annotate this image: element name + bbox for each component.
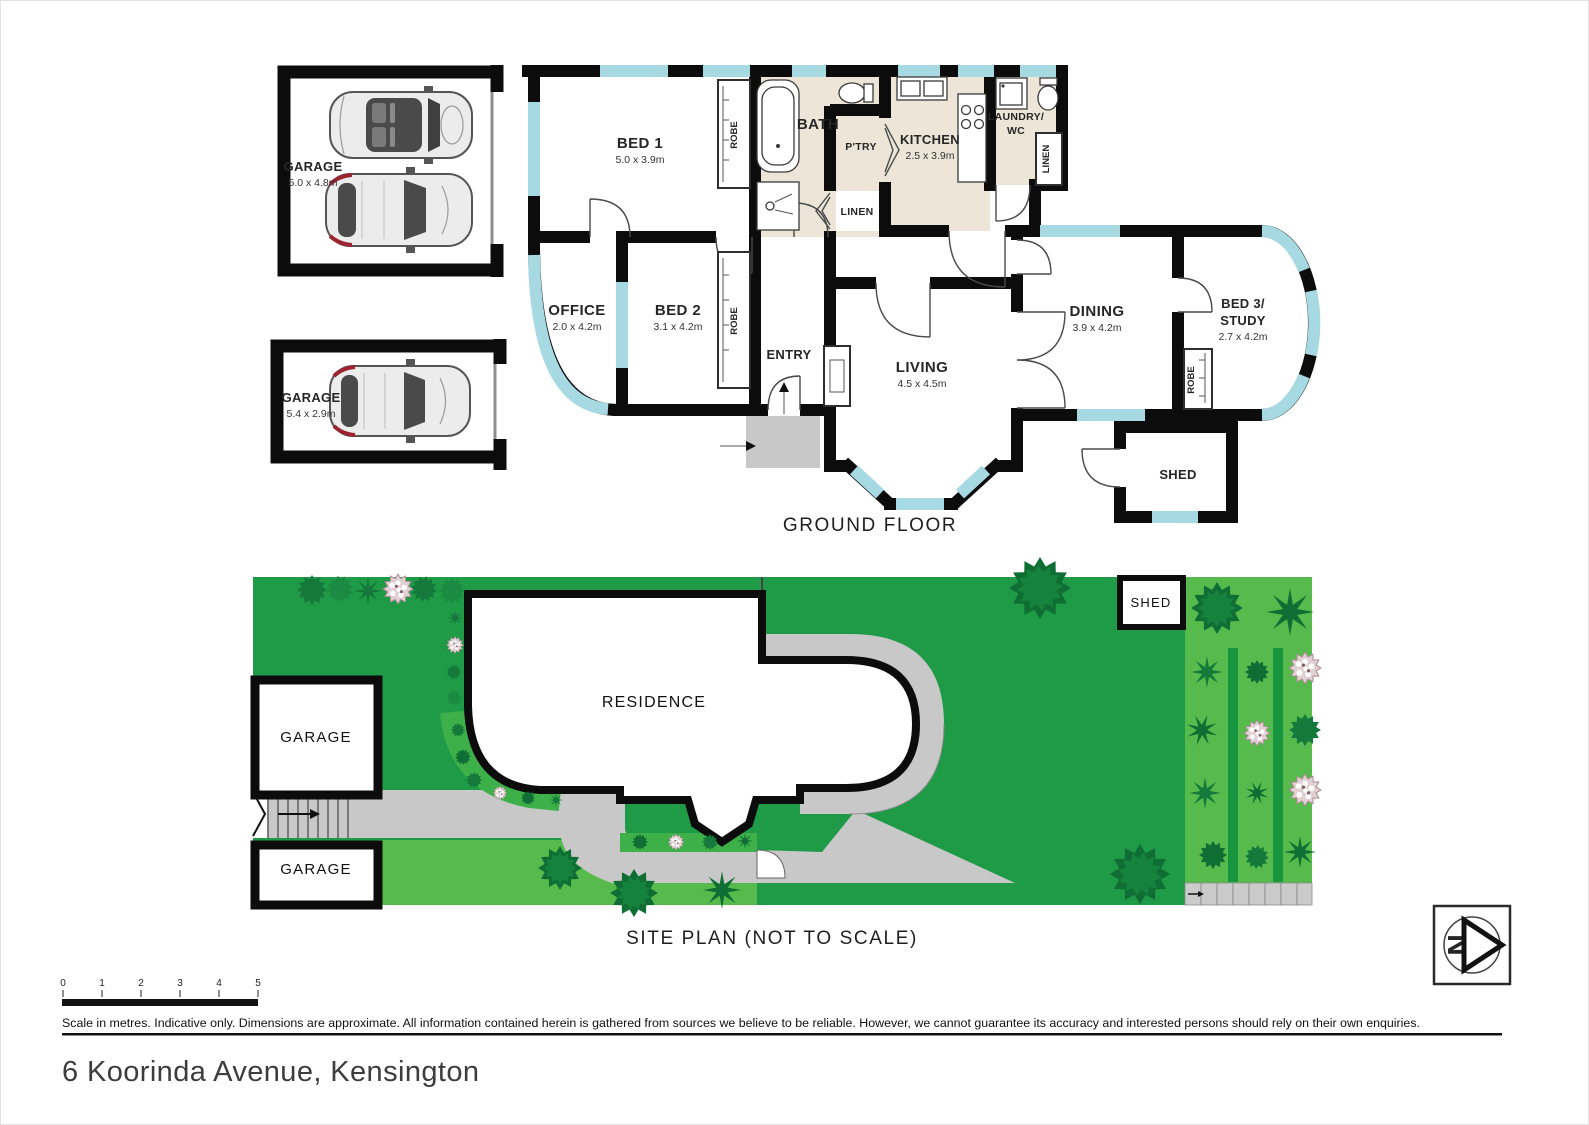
floorplan-canvas: GARAGE 5.0 x 4.8m GARAGE 5.4 x 2.9m BED … [0, 0, 1589, 1125]
living-label: LIVING [896, 359, 948, 376]
pantry-label: P'TRY [845, 141, 877, 153]
wc-toilet-icon [1038, 78, 1058, 110]
scale-tick-5: 5 [255, 978, 261, 989]
shed-plan-label: SHED [1159, 467, 1196, 482]
bed3-label-line2: STUDY [1220, 313, 1266, 328]
site-garage-lower-label: GARAGE [280, 861, 351, 878]
entry-porch [746, 416, 820, 468]
bathtub-icon [757, 80, 799, 172]
car-convertible-icon [330, 86, 472, 164]
dining-label: DINING [1070, 303, 1125, 320]
scale-tick-3: 3 [177, 978, 183, 989]
kitchen-dims: 2.5 x 3.9m [905, 150, 954, 162]
living-dims: 4.5 x 4.5m [897, 378, 946, 390]
stove-icon [958, 94, 986, 182]
site-garage-upper-label: GARAGE [280, 729, 351, 746]
north-arrow-icon: N [1434, 906, 1510, 984]
garage-double-dims: 5.0 x 4.8m [288, 177, 337, 189]
site-shed-label: SHED [1131, 595, 1172, 610]
bed3-robe-label: ROBE [1186, 366, 1197, 393]
bed3-label-line1: BED 3/ [1221, 296, 1265, 311]
rear-paving [1185, 883, 1312, 905]
laundry-label-line2: WC [1007, 125, 1025, 137]
garage-double-label: GARAGE [284, 159, 343, 174]
hall-linen-label: LINEN [841, 206, 874, 218]
car-hatchback-icon [330, 359, 470, 443]
dining-dims: 3.9 x 4.2m [1072, 322, 1121, 334]
site-plan: GARAGE GARAGE RESIDENCE SHED SITE PLAN (… [253, 557, 1321, 949]
laundry-tub-icon [996, 78, 1027, 109]
scale-tick-2: 2 [138, 978, 144, 989]
hedge-row [1228, 648, 1238, 882]
kitchen-sink-icon [897, 77, 947, 100]
bed2-label: BED 2 [655, 302, 701, 319]
car-hatchback-icon [326, 167, 472, 253]
bed2-robe-label: ROBE [729, 307, 740, 334]
hedge-row [1273, 648, 1283, 882]
property-address: 6 Koorinda Avenue, Kensington [62, 1056, 479, 1088]
site-plan-caption: SITE PLAN (NOT TO SCALE) [626, 928, 918, 949]
site-residence-label: RESIDENCE [602, 694, 706, 711]
bath-label: BATH [797, 116, 839, 133]
entry-label: ENTRY [766, 347, 811, 362]
floorplan-document: GARAGE 5.0 x 4.8m GARAGE 5.4 x 2.9m BED … [0, 0, 1589, 1125]
office-dims: 2.0 x 4.2m [552, 321, 601, 333]
bed2-dims: 3.1 x 4.2m [653, 321, 702, 333]
office-label: OFFICE [548, 302, 605, 319]
scale-bar-rule [62, 999, 258, 1006]
footer-rule [62, 1033, 1502, 1036]
scale-tick-0: 0 [60, 978, 66, 989]
garage-single-dims: 5.4 x 2.9m [286, 408, 335, 420]
bed3-dims: 2.7 x 4.2m [1218, 331, 1267, 343]
laundry-label-line1: LAUNDRY/ [988, 111, 1044, 123]
bed1-label: BED 1 [617, 135, 663, 152]
scale-tick-1: 1 [99, 978, 105, 989]
laundry-linen-label: LINEN [1041, 145, 1052, 174]
disclaimer-text: Scale in metres. Indicative only. Dimens… [62, 1016, 1420, 1030]
toilet-icon [839, 83, 873, 103]
garage-single-label: GARAGE [282, 390, 341, 405]
bed1-dims: 5.0 x 3.9m [615, 154, 664, 166]
ground-floor-caption: GROUND FLOOR [783, 515, 957, 536]
kitchen-label: KITCHEN [900, 132, 960, 147]
shower-icon [757, 182, 799, 230]
scale-tick-4: 4 [216, 978, 222, 989]
fireplace [824, 346, 850, 406]
bed1-robe-label: ROBE [729, 121, 740, 148]
